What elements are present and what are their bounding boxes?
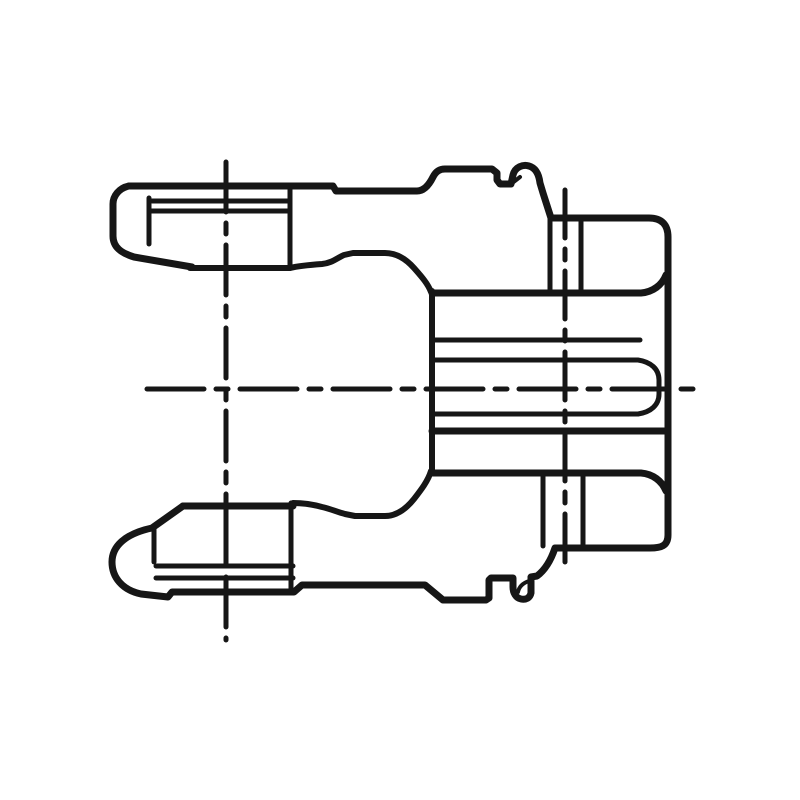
technical-drawing-page xyxy=(0,0,800,800)
top-ear-ball-end-path xyxy=(113,186,192,267)
bottom-tab-notch-path xyxy=(518,581,529,592)
top-saddle-contour-path xyxy=(290,253,431,292)
yoke-technical-drawing xyxy=(0,0,800,800)
hub-bottom-line-path xyxy=(432,473,666,491)
drawing-ink-group xyxy=(112,162,694,640)
bottom-saddle-contour-path xyxy=(293,471,431,516)
